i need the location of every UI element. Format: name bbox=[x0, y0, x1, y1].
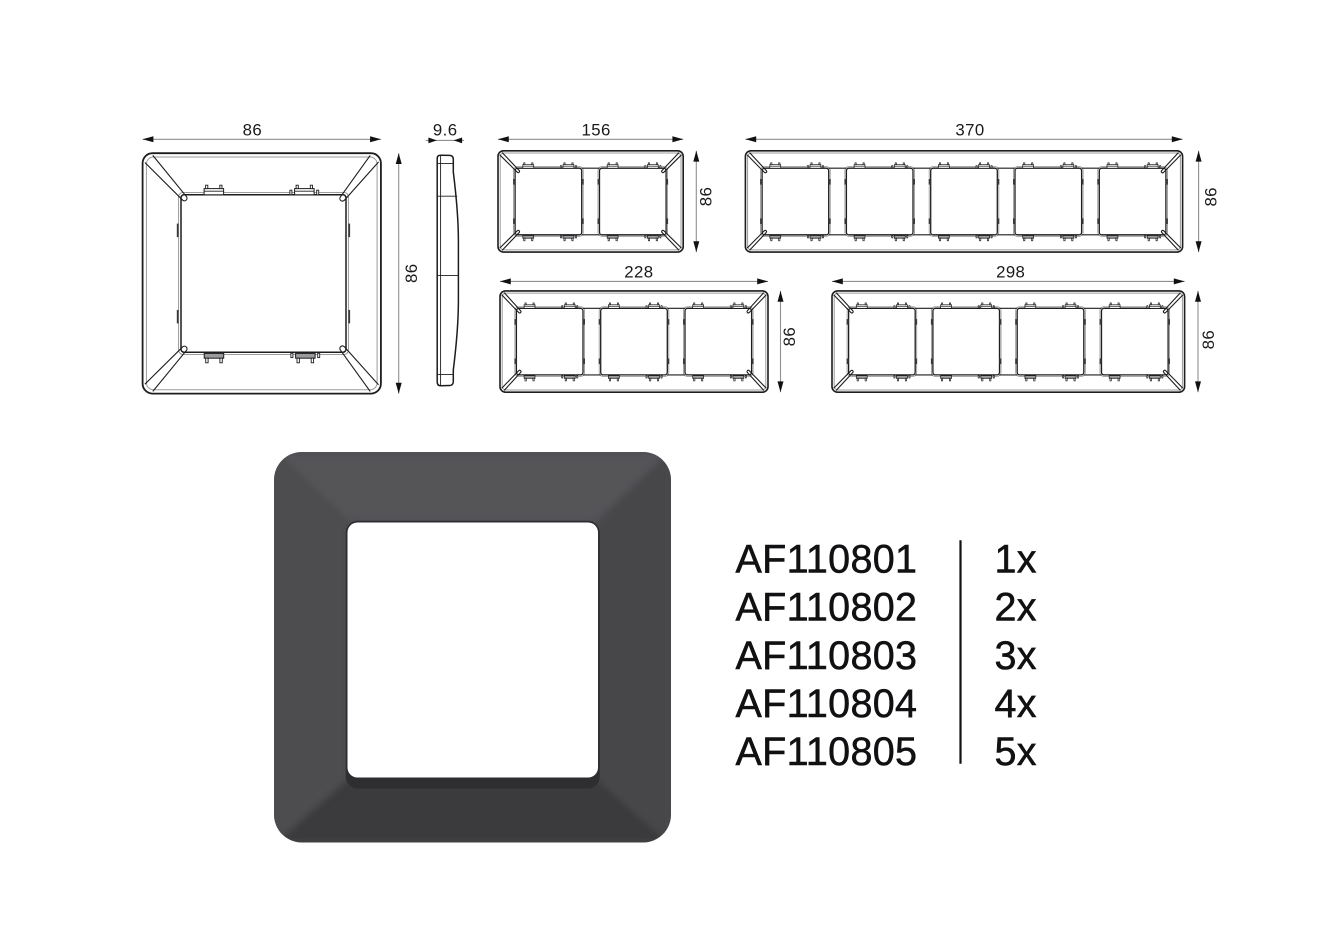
svg-text:AF110805: AF110805 bbox=[736, 730, 918, 774]
svg-text:298: 298 bbox=[996, 262, 1025, 281]
svg-text:86: 86 bbox=[402, 264, 421, 283]
svg-text:9.6: 9.6 bbox=[433, 121, 458, 140]
svg-text:86: 86 bbox=[243, 120, 262, 139]
svg-text:86: 86 bbox=[1202, 187, 1221, 206]
svg-text:86: 86 bbox=[696, 187, 715, 206]
svg-text:5x: 5x bbox=[995, 730, 1037, 774]
svg-text:2x: 2x bbox=[995, 586, 1037, 630]
svg-text:1x: 1x bbox=[995, 537, 1037, 581]
svg-text:AF110801: AF110801 bbox=[736, 537, 918, 581]
svg-text:3x: 3x bbox=[995, 634, 1037, 678]
svg-text:AF110804: AF110804 bbox=[736, 682, 918, 726]
svg-text:156: 156 bbox=[581, 120, 610, 139]
svg-text:228: 228 bbox=[624, 262, 653, 281]
svg-text:86: 86 bbox=[780, 327, 799, 346]
svg-text:AF110803: AF110803 bbox=[736, 634, 918, 678]
svg-text:AF110802: AF110802 bbox=[736, 586, 918, 630]
svg-text:86: 86 bbox=[1199, 330, 1218, 349]
svg-text:370: 370 bbox=[955, 120, 984, 139]
svg-text:4x: 4x bbox=[995, 682, 1037, 726]
